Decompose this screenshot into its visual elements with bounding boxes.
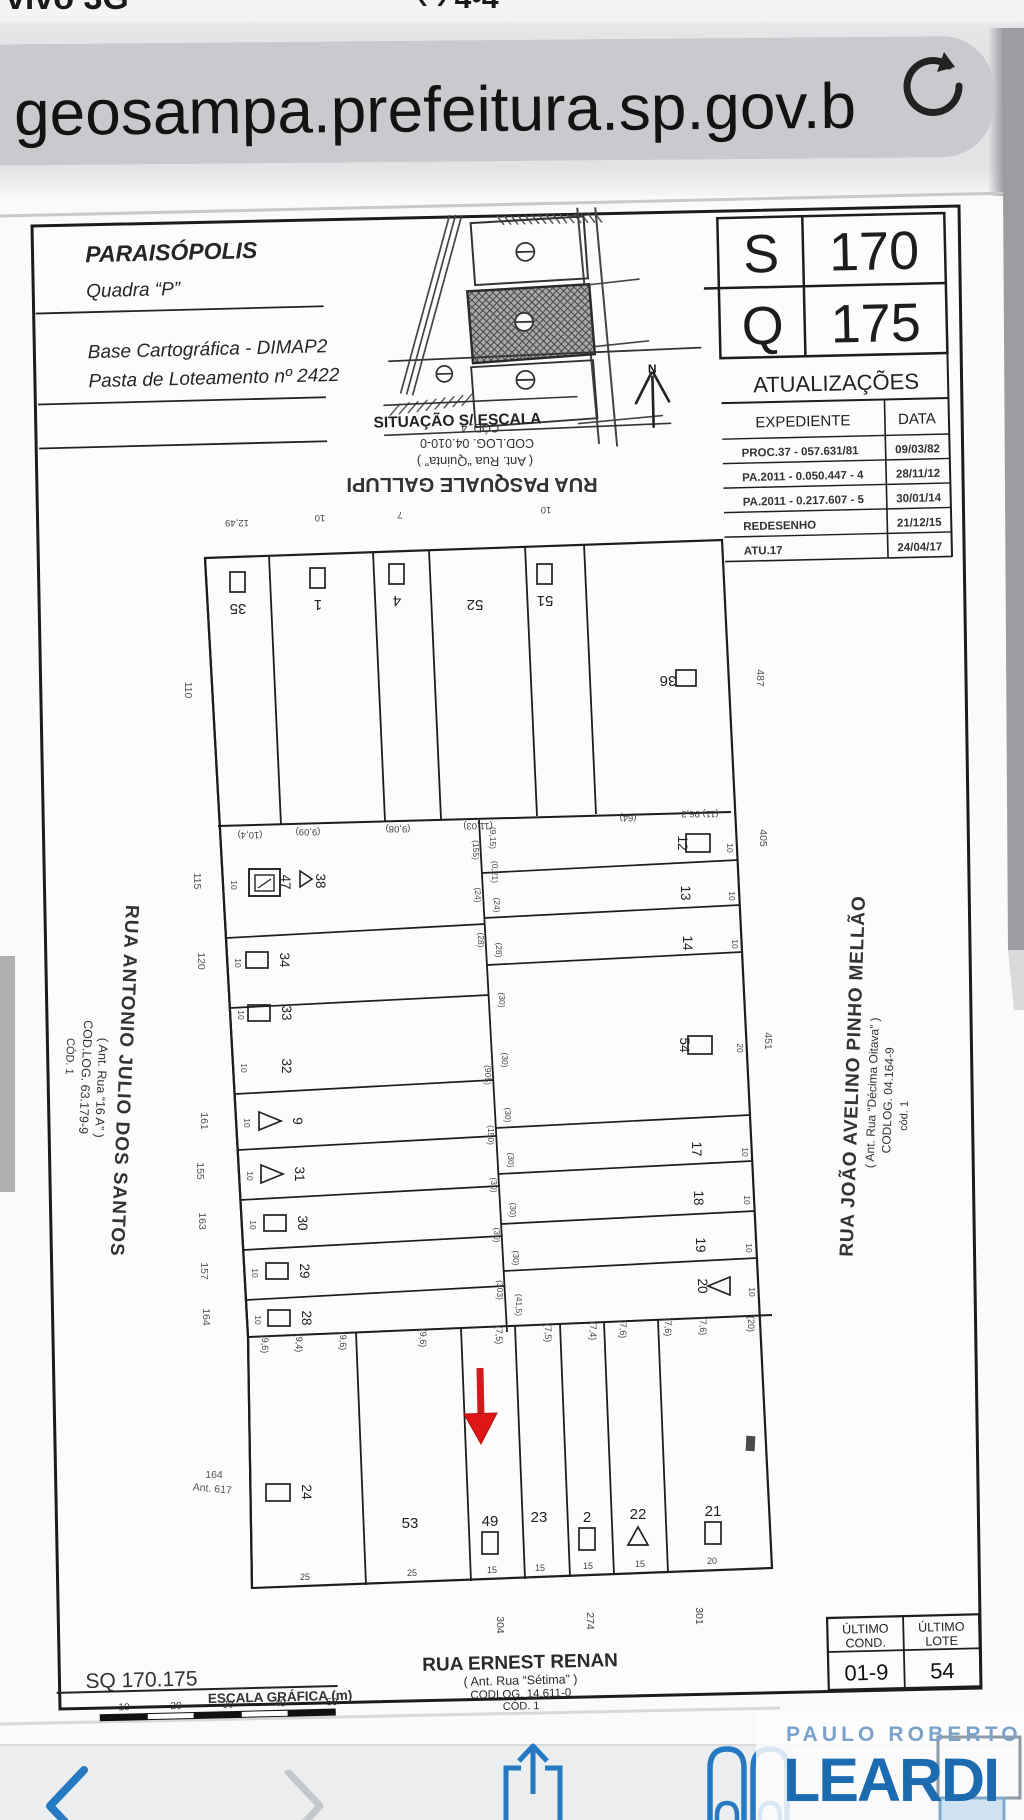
svg-text:10: 10	[242, 1118, 252, 1128]
svg-text:10: 10	[730, 939, 740, 949]
svg-text:(7,5): (7,5)	[494, 1326, 504, 1345]
svg-text:RUA PASQUALE GALLUPI: RUA PASQUALE GALLUPI	[346, 473, 597, 495]
svg-text:( Ant. Rua “Sétima” ): ( Ant. Rua “Sétima” )	[463, 1672, 577, 1689]
svg-text:COND.: COND.	[845, 1636, 886, 1651]
svg-text:ATUALIZAÇÕES: ATUALIZAÇÕES	[753, 369, 919, 398]
svg-text:(30): (30)	[489, 1177, 499, 1192]
svg-text:7: 7	[397, 509, 402, 520]
svg-text:24/04/17: 24/04/17	[897, 541, 942, 554]
svg-text:10: 10	[233, 958, 243, 968]
svg-text:1: 1	[314, 596, 322, 613]
svg-text:19: 19	[693, 1237, 708, 1252]
svg-text:36: 36	[660, 672, 677, 689]
svg-text:51: 51	[537, 592, 554, 609]
svg-text:301: 301	[693, 1607, 705, 1625]
svg-text:34: 34	[277, 952, 292, 968]
svg-text:(11) 96,3: (11) 96,3	[681, 808, 718, 819]
svg-text:(0,21): (0,21)	[490, 861, 500, 883]
svg-text:15: 15	[635, 1559, 645, 1569]
svg-text:10: 10	[315, 512, 326, 523]
svg-text:(24): (24)	[492, 897, 502, 912]
svg-text:(905): (905)	[483, 1065, 493, 1085]
svg-text:10: 10	[727, 891, 737, 901]
svg-text:09/03/82: 09/03/82	[895, 443, 940, 456]
svg-text:(155): (155)	[471, 840, 481, 860]
svg-text:(150): (150)	[486, 1125, 496, 1145]
svg-text:10: 10	[245, 1171, 255, 1181]
svg-text:(9,6): (9,6)	[338, 1332, 348, 1351]
svg-text:53: 53	[402, 1515, 419, 1532]
svg-text:(9,4): (9,4)	[294, 1334, 304, 1353]
svg-text:38: 38	[313, 873, 328, 888]
svg-text:170: 170	[828, 221, 919, 283]
svg-text:(9,6): (9,6)	[260, 1335, 270, 1354]
svg-text:(30): (30)	[500, 1052, 510, 1067]
svg-text:(30): (30)	[497, 992, 507, 1007]
svg-text:(10,4): (10,4)	[238, 829, 263, 840]
svg-text:115: 115	[191, 873, 203, 890]
svg-text:20: 20	[707, 1556, 717, 1566]
svg-text:10: 10	[744, 1243, 754, 1253]
svg-text:(64): (64)	[620, 812, 637, 823]
svg-text:25: 25	[300, 1572, 310, 1582]
svg-text:LOTE: LOTE	[925, 1634, 958, 1649]
svg-text:31: 31	[292, 1166, 307, 1181]
svg-text:49: 49	[482, 1513, 499, 1530]
svg-text:REDESENHO: REDESENHO	[743, 520, 816, 534]
svg-text:DATA: DATA	[898, 410, 936, 428]
svg-text:(9,15): (9,15)	[488, 827, 498, 849]
svg-text:22: 22	[630, 1506, 647, 1523]
svg-text:25: 25	[407, 1568, 417, 1578]
svg-text:ATU.17: ATU.17	[744, 545, 783, 558]
svg-text:155: 155	[194, 1162, 206, 1180]
svg-text:CÓD. 4: CÓD. 4	[460, 421, 499, 434]
svg-text:(28): (28)	[494, 942, 504, 957]
svg-text:10: 10	[541, 504, 552, 515]
svg-text:30/01/14: 30/01/14	[896, 492, 942, 505]
svg-text:30: 30	[222, 1700, 234, 1711]
svg-text:487: 487	[754, 669, 766, 687]
svg-text:cód. 1: cód. 1	[898, 1101, 911, 1131]
svg-text:(30): (30)	[511, 1250, 521, 1265]
svg-text:10: 10	[229, 880, 239, 890]
svg-text:10: 10	[742, 1195, 752, 1205]
svg-text:12,49: 12,49	[225, 517, 249, 528]
svg-text:10: 10	[250, 1268, 260, 1278]
svg-text:24: 24	[299, 1484, 315, 1500]
svg-text:10: 10	[239, 1063, 249, 1073]
svg-text:4: 4	[393, 592, 401, 609]
svg-text:14: 14	[680, 935, 695, 951]
svg-text:163: 163	[196, 1212, 208, 1230]
svg-text:15: 15	[583, 1561, 593, 1571]
svg-text:17: 17	[689, 1141, 704, 1156]
svg-text:Quadra “P”: Quadra “P”	[86, 279, 182, 302]
svg-text:20: 20	[735, 1043, 745, 1053]
svg-text:N: N	[648, 362, 657, 376]
svg-text:40: 40	[274, 1698, 286, 1709]
svg-text:54: 54	[677, 1037, 692, 1053]
svg-text:28/11/12: 28/11/12	[896, 468, 940, 481]
svg-text:164: 164	[205, 1469, 223, 1481]
svg-text:Q: Q	[741, 296, 784, 357]
svg-text:CÓD. 1: CÓD. 1	[503, 1699, 540, 1713]
svg-text:15: 15	[487, 1565, 497, 1575]
svg-text:(20): (20)	[746, 1316, 756, 1332]
svg-text:(24): (24)	[473, 887, 483, 902]
svg-text:405: 405	[757, 829, 769, 847]
svg-text:274: 274	[584, 1612, 596, 1630]
svg-text:(28): (28)	[476, 932, 486, 947]
svg-text:164: 164	[200, 1308, 212, 1326]
svg-text:10: 10	[740, 1147, 750, 1157]
svg-text:35: 35	[230, 600, 247, 617]
svg-text:(7,5): (7,5)	[543, 1324, 553, 1343]
svg-text:451: 451	[762, 1032, 774, 1050]
svg-text:10: 10	[747, 1287, 757, 1297]
svg-text:( Ant. Rua “Quinta” ): ( Ant. Rua “Quinta” )	[417, 454, 533, 469]
svg-text:10: 10	[253, 1315, 263, 1325]
svg-text:32: 32	[279, 1058, 294, 1073]
svg-text:(9,09): (9,09)	[296, 826, 321, 837]
svg-text:161: 161	[198, 1112, 210, 1130]
svg-text:01-9: 01-9	[844, 1660, 889, 1686]
svg-text:304: 304	[494, 1616, 506, 1634]
svg-text:ÚLTIMO: ÚLTIMO	[842, 1620, 889, 1636]
svg-text:47: 47	[278, 874, 293, 889]
svg-text:15: 15	[535, 1563, 545, 1573]
svg-text:110: 110	[182, 682, 194, 699]
svg-text:2: 2	[583, 1509, 591, 1526]
svg-text:18: 18	[691, 1190, 706, 1205]
svg-text:(7,4): (7,4)	[588, 1322, 598, 1341]
svg-text:EXPEDIENTE: EXPEDIENTE	[755, 412, 850, 431]
svg-text:50: 50	[326, 1697, 338, 1708]
svg-text:(303): (303)	[495, 1280, 505, 1300]
svg-text:10: 10	[725, 843, 735, 853]
svg-text:PARAISÓPOLIS: PARAISÓPOLIS	[85, 236, 258, 267]
svg-text:10: 10	[236, 1010, 246, 1020]
svg-text:(9,6): (9,6)	[418, 1329, 428, 1348]
svg-text:(30): (30)	[506, 1152, 516, 1167]
svg-text:(9,08): (9,08)	[386, 823, 411, 834]
svg-text:(41,5): (41,5)	[514, 1294, 524, 1316]
svg-text:157: 157	[198, 1262, 210, 1280]
svg-text:9: 9	[290, 1117, 305, 1125]
svg-text:S: S	[742, 224, 779, 285]
svg-text:21/12/15: 21/12/15	[897, 517, 943, 530]
svg-text:52: 52	[467, 596, 484, 613]
svg-text:54: 54	[930, 1658, 955, 1684]
svg-text:(30): (30)	[503, 1107, 513, 1122]
svg-text:20: 20	[170, 1701, 182, 1712]
svg-text:33: 33	[279, 1005, 294, 1020]
svg-text:21: 21	[705, 1503, 722, 1520]
svg-text:(30): (30)	[508, 1202, 518, 1217]
svg-text:28: 28	[299, 1310, 314, 1325]
svg-text:COD.LOG. 04.010-0: COD.LOG. 04.010-0	[420, 436, 534, 450]
svg-text:(30): (30)	[492, 1227, 502, 1242]
svg-text:10: 10	[248, 1220, 258, 1230]
svg-text:(7,6): (7,6)	[618, 1320, 628, 1339]
svg-text:(7,6): (7,6)	[698, 1317, 708, 1336]
svg-text:12: 12	[675, 835, 690, 850]
svg-text:13: 13	[678, 885, 693, 900]
svg-text:175: 175	[830, 293, 921, 355]
svg-text:30: 30	[295, 1215, 310, 1230]
svg-text:120: 120	[195, 952, 207, 970]
svg-text:CÓD. 1: CÓD. 1	[63, 1038, 78, 1075]
svg-text:(7,6): (7,6)	[663, 1318, 673, 1337]
svg-text:10: 10	[118, 1702, 130, 1713]
svg-text:23: 23	[531, 1509, 548, 1526]
svg-text:29: 29	[297, 1263, 312, 1278]
svg-text:ÚLTIMO: ÚLTIMO	[918, 1619, 965, 1635]
